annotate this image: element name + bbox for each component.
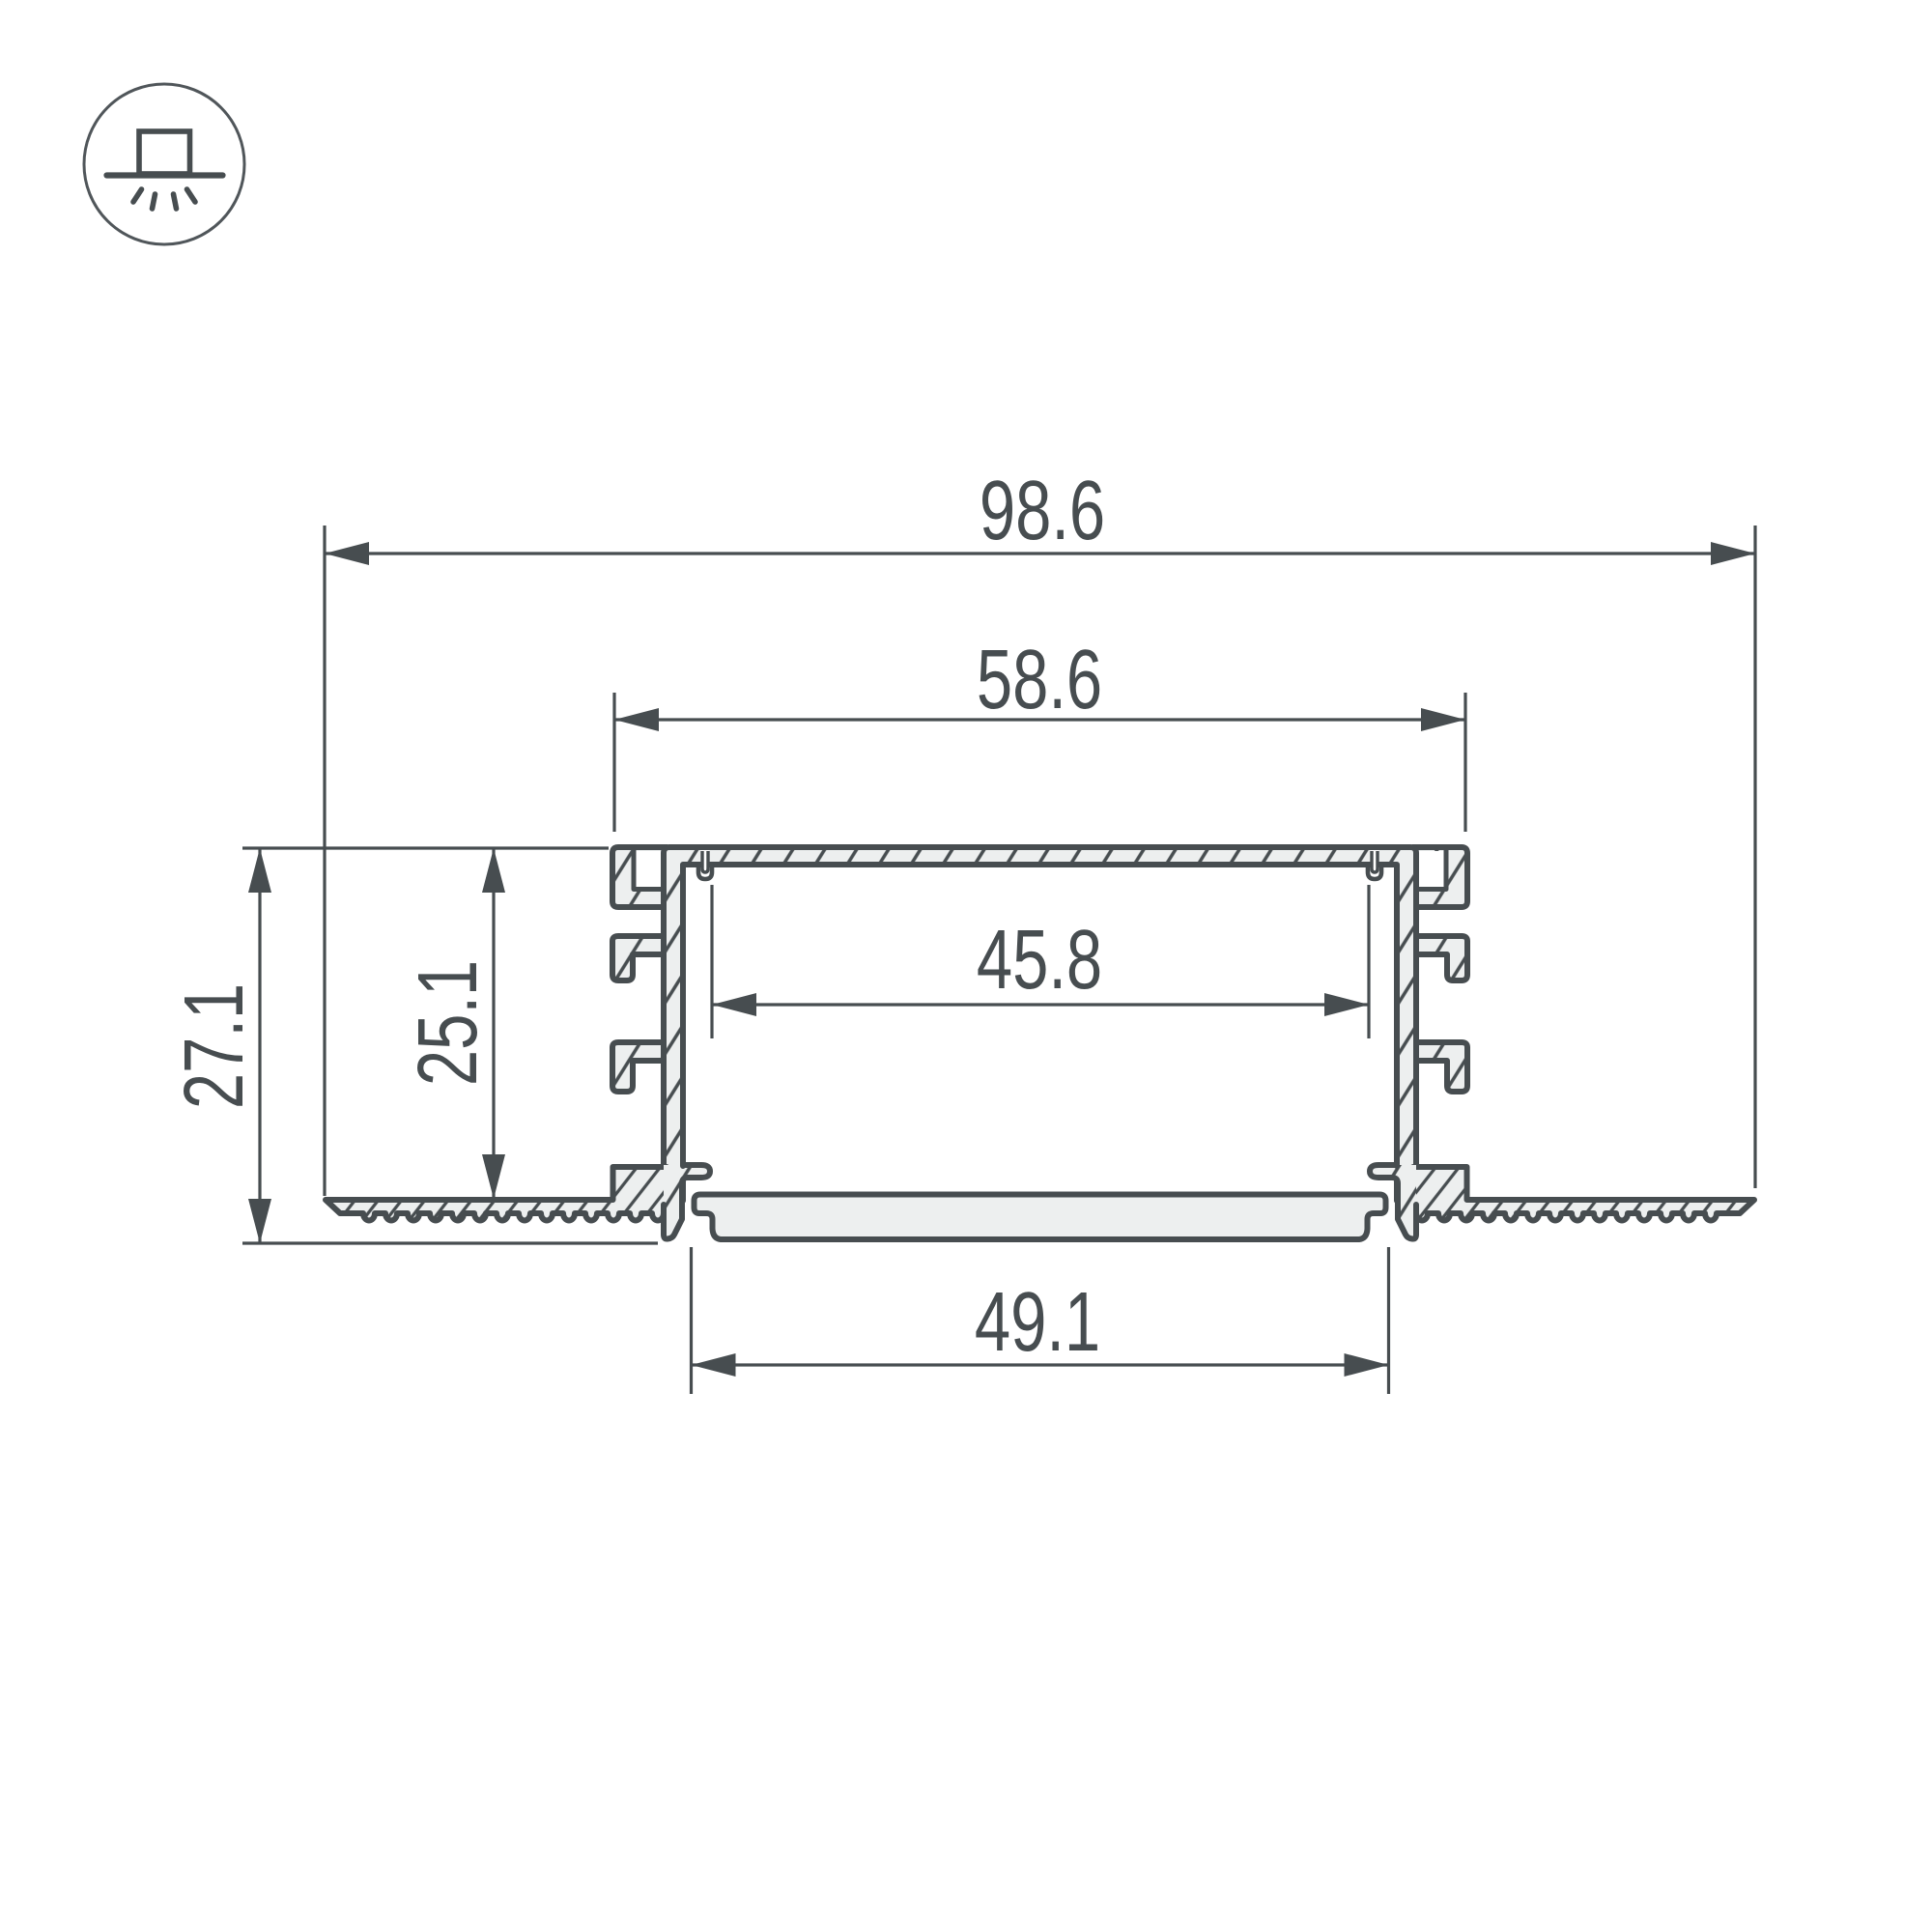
svg-text:25.1: 25.1	[402, 960, 495, 1086]
svg-text:58.6: 58.6	[977, 634, 1102, 726]
svg-text:27.1: 27.1	[168, 983, 261, 1109]
svg-text:49.1: 49.1	[975, 1276, 1100, 1369]
svg-text:98.6: 98.6	[980, 465, 1105, 557]
svg-text:45.8: 45.8	[977, 914, 1102, 1007]
